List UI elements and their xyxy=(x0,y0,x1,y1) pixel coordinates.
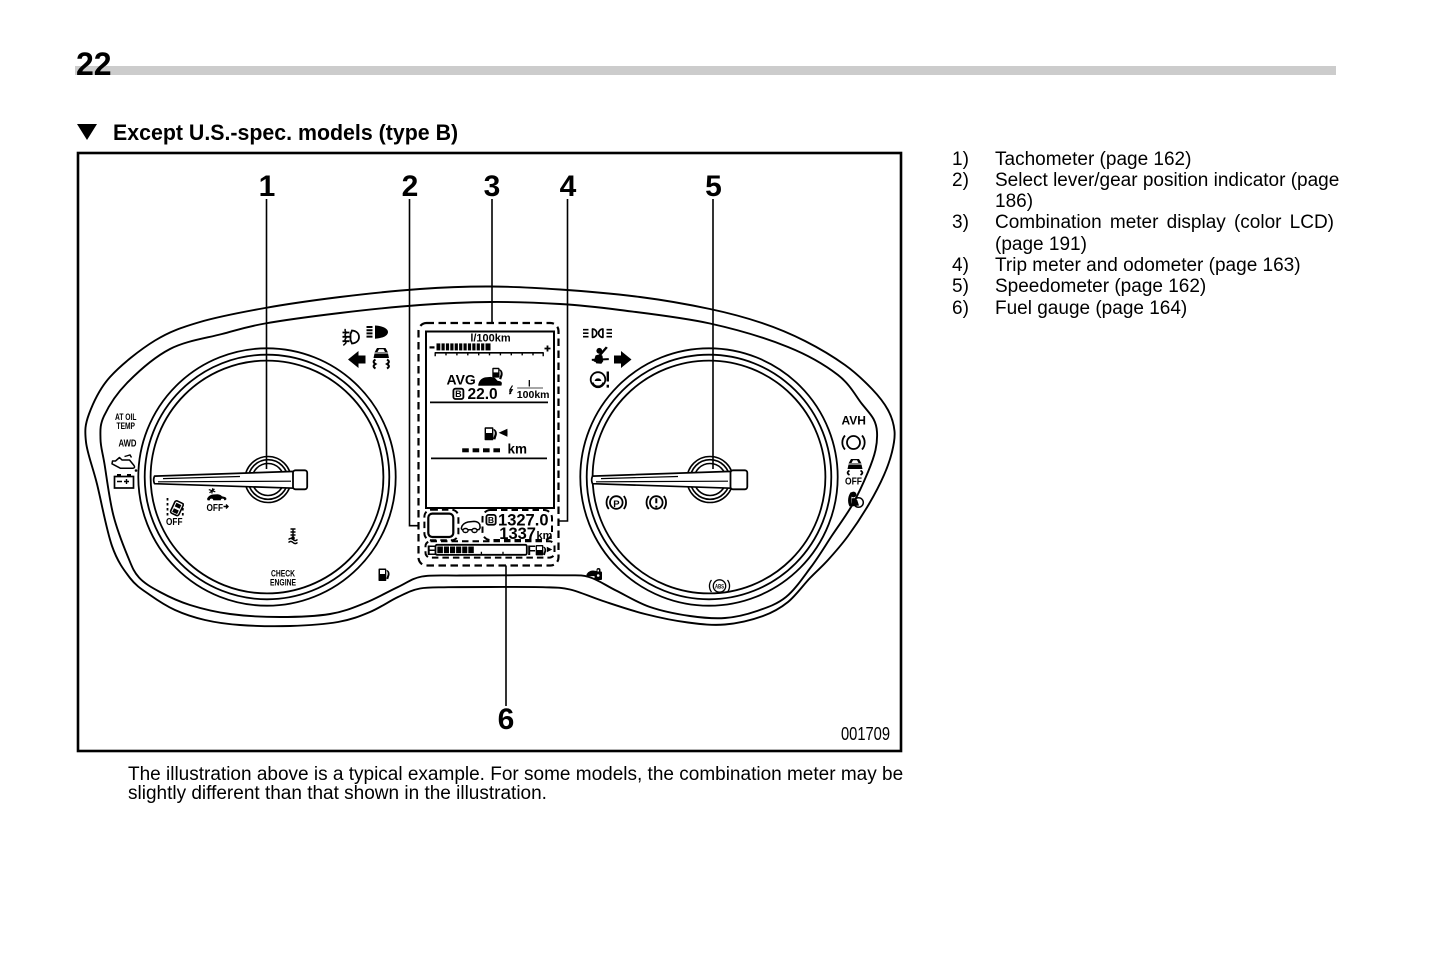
svg-text:OFF: OFF xyxy=(845,477,862,488)
svg-text:OFF: OFF xyxy=(207,503,224,514)
svg-text:km: km xyxy=(508,441,528,456)
svg-text:5: 5 xyxy=(705,170,722,203)
svg-text:ABS: ABS xyxy=(715,584,724,590)
svg-text:6: 6 xyxy=(498,703,515,736)
svg-text:OFF: OFF xyxy=(166,517,183,528)
svg-text:22.0: 22.0 xyxy=(468,386,498,403)
svg-text:B: B xyxy=(455,389,462,399)
svg-text:001709: 001709 xyxy=(841,724,890,744)
svg-text:1: 1 xyxy=(259,170,276,203)
svg-text:100km: 100km xyxy=(517,389,550,401)
svg-text:l/100km: l/100km xyxy=(470,332,511,344)
svg-text:B: B xyxy=(488,515,494,525)
svg-text:F: F xyxy=(527,542,536,558)
svg-text:ENGINE: ENGINE xyxy=(270,578,296,589)
svg-text:TEMP: TEMP xyxy=(117,421,136,432)
svg-text:P: P xyxy=(613,499,620,510)
svg-text:2: 2 xyxy=(402,170,419,203)
svg-text:4: 4 xyxy=(560,170,577,203)
svg-text:km: km xyxy=(537,530,553,542)
svg-text:3: 3 xyxy=(484,170,501,203)
svg-text:AVH: AVH xyxy=(842,414,866,428)
svg-text:AWD: AWD xyxy=(119,439,137,450)
